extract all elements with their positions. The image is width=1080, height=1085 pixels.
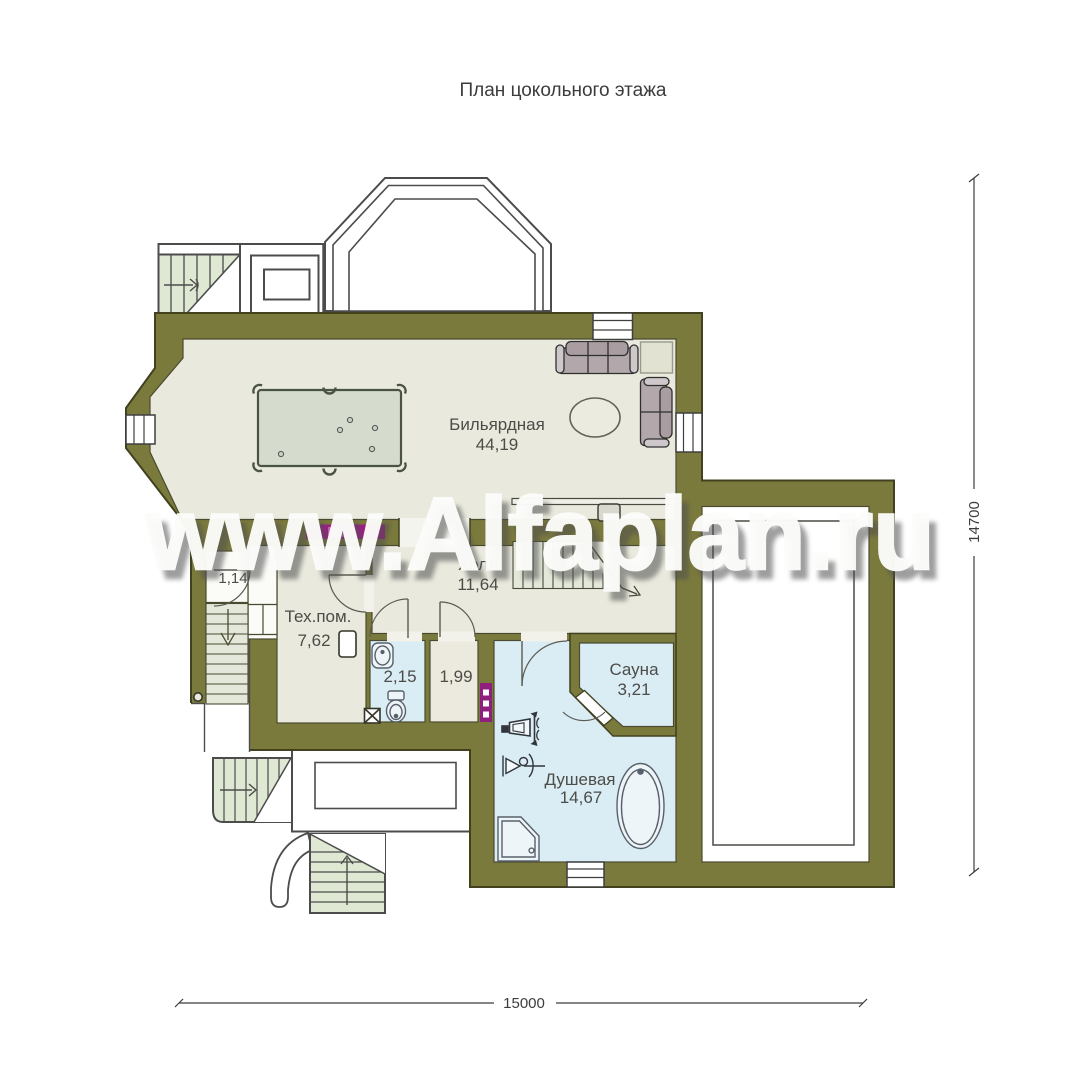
- svg-text:15000: 15000: [503, 995, 545, 1012]
- svg-text:14700: 14700: [966, 501, 983, 543]
- svg-text:www.Alfaplan.ru: www.Alfaplan.ru: [145, 476, 935, 591]
- svg-text:1,99: 1,99: [439, 667, 472, 686]
- svg-text:44,19: 44,19: [476, 435, 519, 454]
- svg-text:14,67: 14,67: [560, 788, 603, 807]
- svg-text:Тех.пом.: Тех.пом.: [285, 607, 352, 626]
- svg-text:Сауна: Сауна: [609, 660, 659, 679]
- svg-text:Бильярдная: Бильярдная: [449, 415, 545, 434]
- svg-text:План цокольного этажа: План цокольного этажа: [459, 80, 666, 101]
- svg-text:7,62: 7,62: [297, 631, 330, 650]
- svg-text:2,15: 2,15: [383, 667, 416, 686]
- svg-text:Душевая: Душевая: [545, 770, 616, 789]
- svg-text:3,21: 3,21: [617, 680, 650, 699]
